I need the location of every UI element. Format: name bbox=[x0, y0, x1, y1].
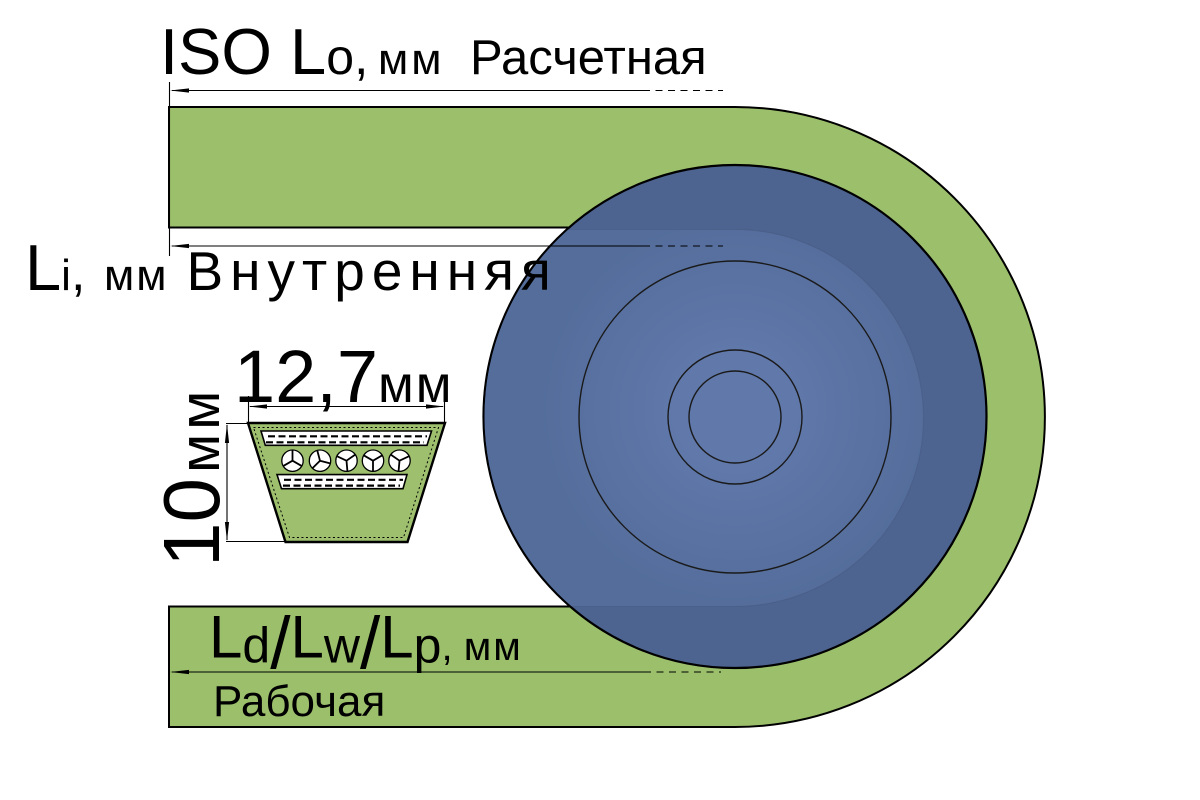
svg-text:Рабочая: Рабочая bbox=[213, 677, 385, 726]
